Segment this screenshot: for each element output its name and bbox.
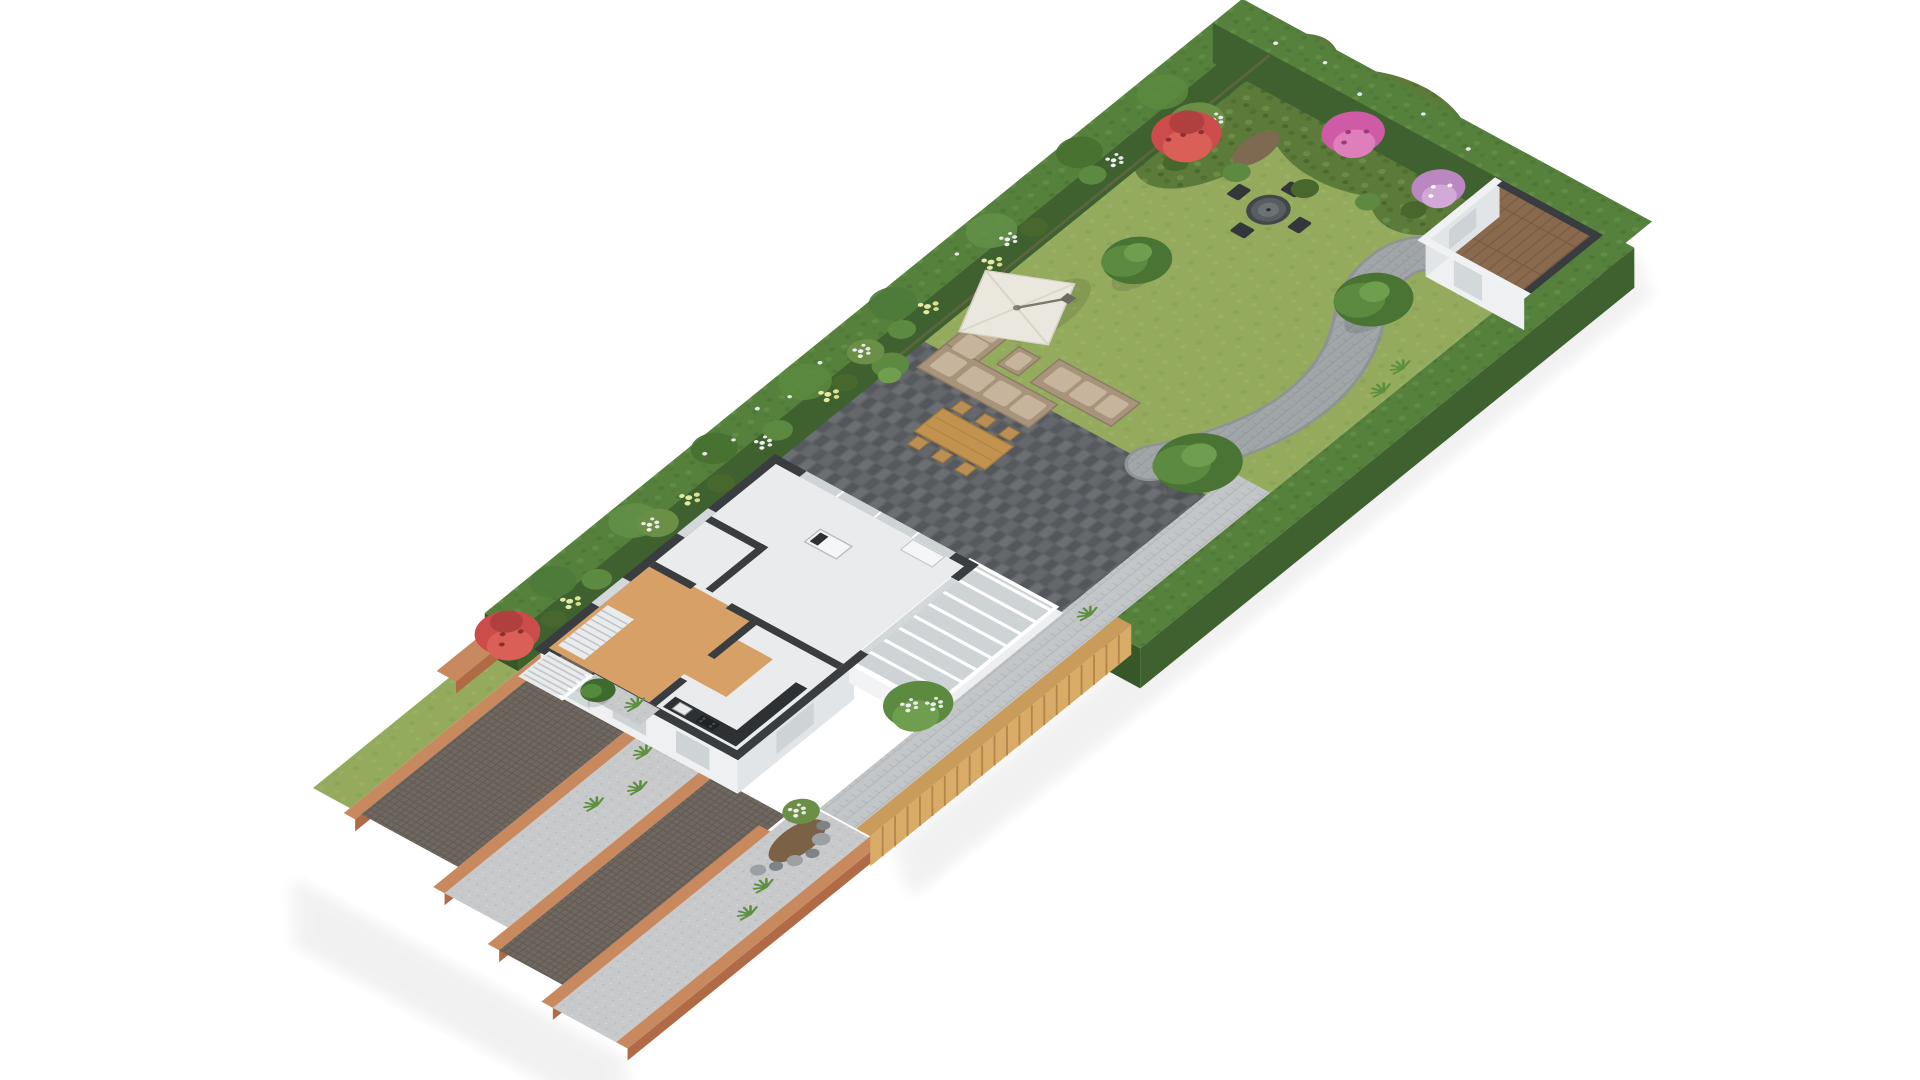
floorplan-canvas — [0, 0, 1920, 1080]
plot — [160, 0, 1716, 1080]
render-stage — [0, 0, 1920, 1080]
